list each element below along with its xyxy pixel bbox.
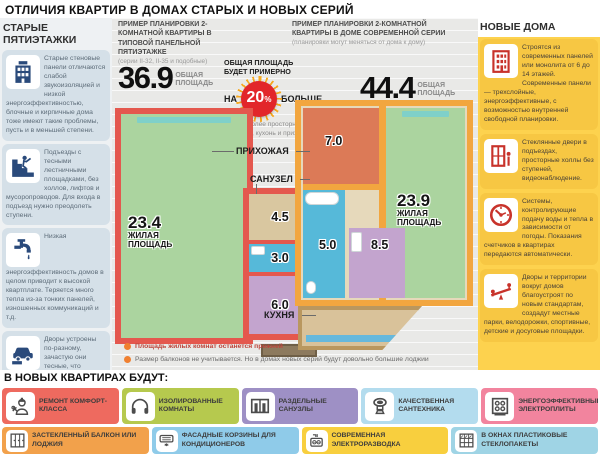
feature-tile-balcony: ЗАСТЕКЛЕННЫЙ БАЛКОН ИЛИ ЛОДЖИЯ	[2, 427, 149, 454]
new-total-area: 44.4 ОБЩАЯ ПЛОЩАДЬ	[360, 74, 459, 102]
playground-seesaw-icon	[484, 274, 518, 308]
page-title: ОТЛИЧИЯ КВАРТИР В ДОМАХ СТАРЫХ И НОВЫХ С…	[0, 0, 600, 18]
toilet-shape	[306, 281, 316, 294]
badge-title: ОБЩАЯ ПЛОЩАДЬ БУДЕТ ПРИМЕРНО	[224, 58, 314, 77]
headphones-icon	[126, 392, 155, 421]
old-living-label: 23.4 ЖИЛАЯ ПЛОЩАДЬ	[128, 214, 184, 249]
feature-label: ЗАСТЕКЛЕННЫЙ БАЛКОН ИЛИ ЛОДЖИЯ	[32, 432, 145, 448]
new-total-area-label: ОБЩАЯ ПЛОЩАДЬ	[417, 82, 459, 98]
feature-label: В ОКНАХ ПЛАСТИКОВЫЕ СТЕКЛОПАКЕТЫ	[481, 432, 594, 448]
new-plan-header: ПРИМЕР ПЛАНИРОВКИ 2-КОМНАТНОЙ КВАРТИРЫ В…	[292, 20, 452, 48]
old-total-area: 36.9 ОБЩАЯ ПЛОЩАДЬ	[118, 64, 217, 92]
connector-line	[300, 179, 310, 180]
new-apartment-floorplan: 7.0 5.0 8.5 23.9 ЖИЛАЯ ПЛ	[295, 100, 473, 306]
entrance-door-icon	[484, 139, 518, 173]
car-parking-icon	[6, 336, 40, 370]
new-houses-column: НОВЫЕ ДОМА Строятся из современных панел…	[478, 18, 600, 388]
connector-line	[296, 151, 310, 152]
feature-label: РАЗДЕЛЬНЫЕ САНУЗЛЫ	[279, 398, 355, 414]
new-houses-card-metering: Системы, контролирующие подачу воды и те…	[480, 193, 598, 266]
glazed-balcony-icon	[6, 430, 28, 452]
feature-tile-wiring: СОВРЕМЕННАЯ ЭЛЕКТРОРАЗВОДКА	[302, 427, 449, 454]
new-living-area-value: 23.9	[397, 192, 453, 209]
old-houses-card-stairs: Подъезды с тесными лестничными площадкам…	[2, 144, 110, 226]
window-panes-icon	[455, 430, 477, 452]
old-living-area-value: 23.4	[128, 214, 184, 231]
footnote-text: Размер балконов не учитывается. Но в дом…	[135, 356, 429, 364]
new-kitchen-area-value: 8.5	[371, 238, 388, 252]
air-conditioner-icon	[156, 430, 178, 452]
features-row-1: РЕМОНТ КОМФОРТ-КЛАССА ИЗОЛИРОВАННЫЕ КОМН…	[2, 388, 598, 424]
floorplans-section: ПРИМЕР ПЛАНИРОВКИ 2-КОМНАТНОЙ КВАРТИРЫ В…	[112, 18, 478, 370]
feature-label: ФАСАДНЫЕ КОРЗИНЫ ДЛЯ КОНДИЦИОНЕРОВ	[182, 432, 295, 448]
new-hallway-room: 7.0	[303, 108, 379, 184]
sink-shape	[251, 246, 265, 255]
feature-label: ЭНЕРГОЭФФЕКТИВНЫЕ ЭЛЕКТРОПЛИТЫ	[518, 398, 598, 414]
window-strip	[137, 117, 231, 123]
bathroom-label: САНУЗЕЛ	[250, 174, 293, 184]
bullet-dot-icon	[124, 356, 131, 363]
bullet-dot-icon	[124, 343, 131, 350]
connector-line	[212, 151, 234, 152]
stairs-person-icon	[6, 149, 40, 183]
faucet-icon	[6, 233, 40, 267]
old-living-area-label: ЖИЛАЯ ПЛОЩАДЬ	[128, 231, 184, 249]
new-bathroom-area-value: 5.0	[319, 238, 336, 252]
new-plan-header-text: ПРИМЕР ПЛАНИРОВКИ 2-КОМНАТНОЙ КВАРТИРЫ В…	[292, 21, 445, 37]
stove-icon	[485, 392, 514, 421]
infographic-root: ОТЛИЧИЯ КВАРТИР В ДОМАХ СТАРЫХ И НОВЫХ С…	[0, 0, 600, 455]
modern-building-icon	[484, 44, 518, 78]
toilet-icon	[365, 392, 394, 421]
connector-line	[302, 315, 316, 316]
kitchen-label: КУХНЯ	[264, 310, 294, 320]
new-hallway-area-value: 7.0	[325, 134, 342, 148]
footnote-living-area: Площадь жилых комнат останется прежней	[124, 343, 283, 351]
new-living-label: 23.9 ЖИЛАЯ ПЛОЩАДЬ	[397, 192, 453, 227]
hallway-label: ПРИХОЖАЯ	[236, 146, 289, 156]
old-living-room: 23.4 ЖИЛАЯ ПЛОЩАДЬ	[115, 108, 253, 344]
new-plan-subheader: (планировки могут меняться от дома к дом…	[292, 39, 452, 48]
new-living-area-label: ЖИЛАЯ ПЛОЩАДЬ	[397, 209, 453, 227]
loggia	[298, 306, 422, 350]
old-apartment-floorplan: 23.4 ЖИЛАЯ ПЛОЩАДЬ 4.5 3.0 6.0	[115, 104, 317, 360]
feature-tile-stoves: ЭНЕРГОЭФФЕКТИВНЫЕ ЭЛЕКТРОПЛИТЫ	[481, 388, 598, 424]
feature-tile-plumbing: КАЧЕСТВЕННАЯ САНТЕХНИКА	[361, 388, 478, 424]
new-houses-cards: Строятся из современных панелей или моно…	[478, 37, 600, 389]
connector-line	[256, 184, 257, 194]
new-total-area-value: 44.4	[360, 74, 414, 102]
feature-tile-renovation: РЕМОНТ КОМФОРТ-КЛАССА	[2, 388, 119, 424]
features-row-2: ЗАСТЕКЛЕННЫЙ БАЛКОН ИЛИ ЛОДЖИЯ ФАСАДНЫЕ …	[2, 427, 598, 454]
new-houses-card-text: Стеклянные двери в подъездах, просторные…	[522, 139, 594, 182]
outlet-icon	[306, 430, 328, 452]
separate-bathroom-icon	[246, 392, 275, 421]
old-total-area-value: 36.9	[118, 64, 172, 92]
new-houses-header: НОВЫЕ ДОМА	[478, 18, 600, 37]
new-houses-card-yards: Дворы и территории вокруг домов благоуст…	[480, 269, 598, 342]
feature-tile-ac-baskets: ФАСАДНЫЕ КОРЗИНЫ ДЛЯ КОНДИЦИОНЕРОВ	[152, 427, 299, 454]
features-header: В НОВЫХ КВАРТИРАХ БУДУТ:	[0, 370, 600, 384]
new-kitchen-room: 8.5	[349, 228, 405, 298]
old-hallway-area-value: 4.5	[271, 210, 288, 224]
feature-label: СОВРЕМЕННАЯ ЭЛЕКТРОРАЗВОДКА	[332, 432, 445, 448]
old-houses-header: СТАРЫЕ ПЯТИЭТАЖКИ	[1, 19, 111, 50]
feature-label: РЕМОНТ КОМФОРТ-КЛАССА	[39, 398, 115, 414]
meter-gauge-icon	[484, 198, 518, 232]
new-flats-features-section: В НОВЫХ КВАРТИРАХ БУДУТ: РЕМОНТ КОМФОРТ-…	[0, 370, 600, 455]
old-houses-card-panels: Старые стеновые панели отличаются слабой…	[2, 50, 110, 141]
footnote-balconies: Размер балконов не учитывается. Но в дом…	[124, 356, 474, 364]
old-plan-header-text: ПРИМЕР ПЛАНИРОВКИ 2-КОМНАТНОЙ КВАРТИРЫ В…	[118, 21, 212, 56]
window-strip	[402, 111, 449, 117]
feature-tile-windows: В ОКНАХ ПЛАСТИКОВЫЕ СТЕКЛОПАКЕТЫ	[451, 427, 598, 454]
feature-label: ИЗОЛИРОВАННЫЕ КОМНАТЫ	[159, 398, 235, 414]
old-panel-building-icon	[6, 55, 40, 89]
old-bathroom-area-value: 3.0	[271, 251, 288, 265]
new-bathroom-room: 5.0	[303, 190, 345, 298]
feature-tile-separate-bathrooms: РАЗДЕЛЬНЫЕ САНУЗЛЫ	[242, 388, 359, 424]
bathtub-shape	[305, 192, 339, 205]
new-houses-card-entrances: Стеклянные двери в подъездах, просторные…	[480, 134, 598, 189]
loggia-glazing	[306, 335, 399, 342]
old-houses-card-utilities: Низкая энергоэффективность домов в целом…	[2, 228, 110, 328]
worker-icon	[6, 392, 35, 421]
feature-label: КАЧЕСТВЕННАЯ САНТЕХНИКА	[398, 398, 474, 414]
footnote-text: Площадь жилых комнат останется прежней	[135, 343, 283, 351]
old-total-area-label: ОБЩАЯ ПЛОЩАДЬ	[175, 72, 217, 88]
new-houses-card-construction: Строятся из современных панелей или моно…	[480, 39, 598, 130]
feature-tile-isolated-rooms: ИЗОЛИРОВАННЫЕ КОМНАТЫ	[122, 388, 239, 424]
old-houses-column: СТАРЫЕ ПЯТИЭТАЖКИ Старые стеновые панели…	[0, 18, 112, 370]
kitchen-unit-shape	[351, 232, 362, 252]
